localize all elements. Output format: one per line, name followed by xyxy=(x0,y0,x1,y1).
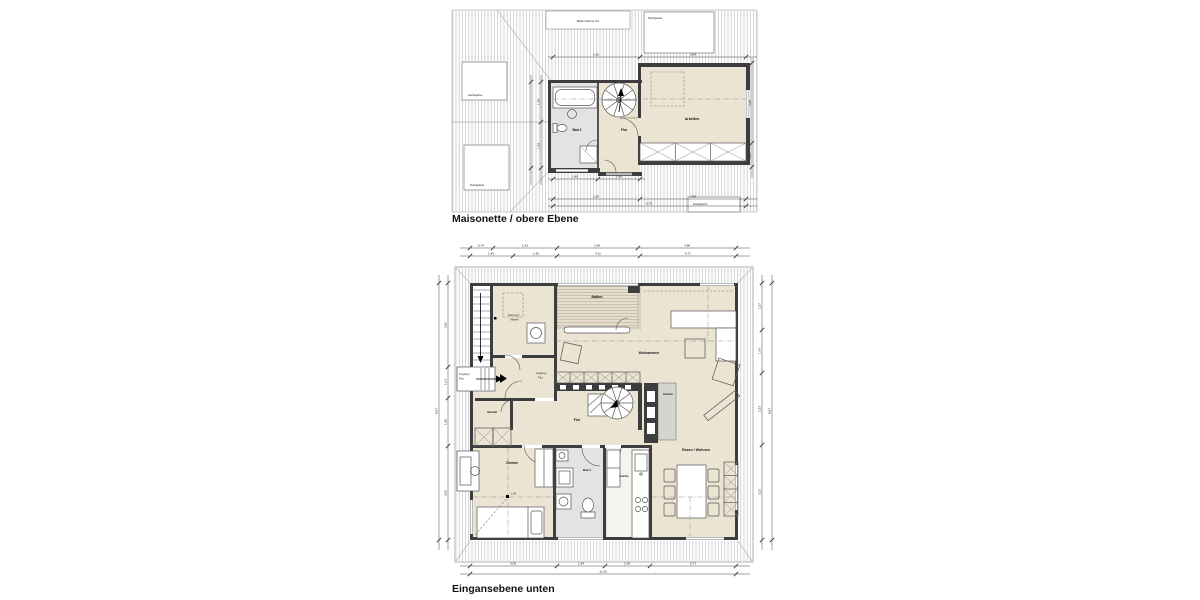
room-label-kueche: Küche xyxy=(619,474,629,478)
kitchen-counter xyxy=(632,450,649,538)
dim-value: 1,40 xyxy=(616,175,622,179)
dim-value: 6,79 xyxy=(646,202,652,206)
storage-boxes-upper xyxy=(640,143,746,161)
sink-icon xyxy=(556,450,568,461)
room-label-balkon: Balkon xyxy=(592,295,603,299)
balcony-step xyxy=(564,327,630,333)
dim-value: 5,71 xyxy=(685,252,691,256)
dim-value: 2,93 xyxy=(593,53,599,57)
dimension-chain-lower-right: 1,57 1,43 2,33 3,23 8,57 xyxy=(758,275,775,550)
dormer-top-right: Dachgaube xyxy=(644,12,714,53)
wc-icon xyxy=(553,124,557,133)
dim-value: 0,74 xyxy=(478,244,484,248)
dormer-left-1: Dachgaube xyxy=(462,62,507,100)
dim-value: 3,89 xyxy=(690,195,696,199)
lower-floor-plan: Zugang / Flur xyxy=(435,244,775,595)
dim-value: 1,66 xyxy=(444,419,448,425)
room-label-bad2: Bad 2 xyxy=(573,128,582,132)
dim-value: 11,30 xyxy=(599,570,607,574)
room-label-wohnzimmer: Wohnzimmer xyxy=(639,351,660,355)
dim-value: 1,49 xyxy=(572,175,578,179)
room-label-zugang-1: Zugang / xyxy=(536,371,547,375)
room-label-zimmer: Zimmer xyxy=(506,461,519,465)
dim-value: 8,57 xyxy=(435,408,439,414)
dim-value: 2,36 xyxy=(624,562,630,566)
room-label-abstell: Abstell xyxy=(487,410,497,414)
room-label-essen: Essen / Wohnen xyxy=(682,448,710,452)
dim-value: 1,04 xyxy=(444,379,448,385)
lower-plan-title: Eingansebene unten xyxy=(452,583,555,595)
room-label-bad1: Bad 1 xyxy=(583,468,592,472)
room-label-zugang-2: Flur xyxy=(538,376,543,380)
dim-value: 2,90 xyxy=(593,195,599,199)
room-label-flur-upper: Flur xyxy=(621,128,628,132)
dim-value: 1,43 xyxy=(758,348,762,354)
dachgaube-label: Dachgaube xyxy=(468,93,483,97)
dimension-chain-lower-left: 2,80 1,04 1,66 3,06 8,57 xyxy=(435,275,451,550)
dim-value: 1,43 xyxy=(488,252,494,256)
height-marker-label: 1,50 xyxy=(511,492,517,496)
entrance-label-line2: Flur xyxy=(459,377,464,381)
dim-value: 4,98 xyxy=(684,244,690,248)
balkon-ug-label: Balkon Ebene UG xyxy=(577,19,599,23)
wardrobe xyxy=(535,449,553,487)
dachgaube-label: Dachgaube xyxy=(648,16,663,20)
dim-value: 5,71 xyxy=(690,562,696,566)
upper-plan-title: Maisonette / obere Ebene xyxy=(452,213,579,225)
bed xyxy=(477,507,544,538)
dim-value: 3,54 xyxy=(690,53,696,57)
dim-value: 8,57 xyxy=(768,408,772,414)
dim-value: 0,83 xyxy=(748,153,752,159)
dim-value: 2,80 xyxy=(444,322,448,328)
room-label-flur: Flur xyxy=(574,418,581,422)
upper-floor-plan: Balkon Ebene UG Dachgaube Dachgaube Dach… xyxy=(452,10,757,225)
wc-icon xyxy=(581,512,595,518)
dim-value: 3,06 xyxy=(510,562,516,566)
room-label-kamin: Kamin xyxy=(663,392,672,396)
dim-value: 3,23 xyxy=(758,489,762,495)
dim-value: 3,48 xyxy=(594,244,600,248)
tall-cabinet xyxy=(607,450,620,487)
dim-value: 4,11 xyxy=(595,252,601,256)
dim-value: 1,57 xyxy=(758,303,762,309)
desk-bay xyxy=(457,451,480,491)
dim-value: 1,33 xyxy=(537,99,541,105)
dim-value: 1,54 xyxy=(578,562,584,566)
room-label-heizung-1: Heizung / xyxy=(508,313,520,317)
room-label-arbeiten: Arbeiten xyxy=(685,117,700,121)
floorplan-drawing: Balkon Ebene UG Dachgaube Dachgaube Dach… xyxy=(0,0,1200,600)
balcony-below-marker: Balkon Ebene UG xyxy=(546,11,630,29)
dim-value: 1,43 xyxy=(522,244,528,248)
dim-value: 1,53 xyxy=(537,143,541,149)
room-label-heizung-2: Abstell xyxy=(510,318,519,322)
dim-value: 3,06 xyxy=(444,490,448,496)
dachgaube-label: Dachgaube xyxy=(470,183,485,187)
washing-machine-icon xyxy=(556,494,571,509)
dim-value: 1,92 xyxy=(533,252,539,256)
dim-value: 2,33 xyxy=(758,406,762,412)
height-marker-point xyxy=(506,495,509,498)
spiral-staircase-upper xyxy=(602,83,636,117)
floorplan-sheet: Balkon Ebene UG Dachgaube Dachgaube Dach… xyxy=(0,0,1200,600)
entrance-label-line1: Zugang / xyxy=(459,372,470,376)
dormer-left-2: Dachgaube xyxy=(464,145,509,190)
dachgaube-label: Dachgaube xyxy=(693,202,708,206)
dimension-chain-lower-bottom: 3,06 1,54 2,36 5,71 11,30 xyxy=(460,562,750,577)
arbeiten-floor xyxy=(640,67,746,143)
dimension-chain-lower-top: 0,74 1,43 3,48 4,98 1,43 1,92 4,11 5,71 xyxy=(460,244,750,259)
dim-value: 2,65 xyxy=(748,100,752,106)
